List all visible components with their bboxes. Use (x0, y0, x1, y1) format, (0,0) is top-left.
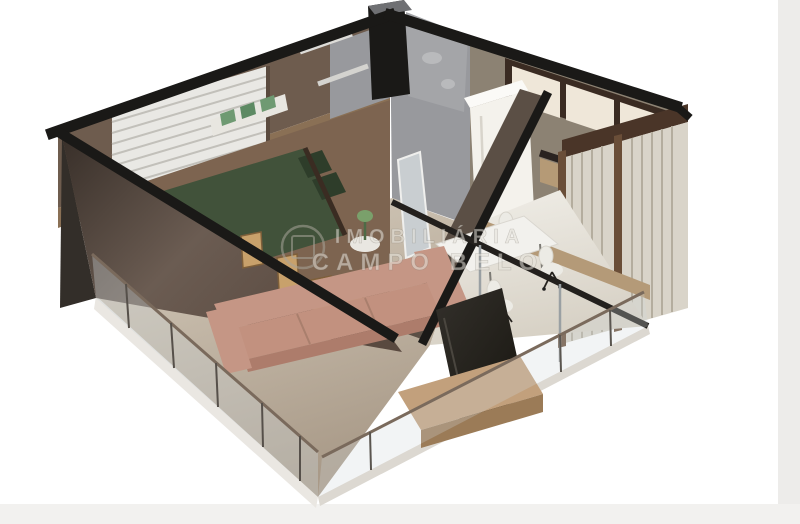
bedside-lamp (357, 210, 373, 222)
wall-mottle (422, 52, 442, 64)
watermark-line1: IMOBILIÁRIA (335, 225, 525, 248)
balustrade-post (560, 335, 561, 372)
balustrade-post (610, 310, 611, 346)
balustrade-post (262, 403, 263, 447)
wall-mottle (441, 79, 455, 89)
chair-caster (542, 287, 546, 291)
bottom-edge-band (0, 504, 800, 524)
floorplan-screenshot: IMOBILIÁRIA CAMPO BELO (0, 0, 800, 524)
watermark-line2: CAMPO BELO (312, 249, 545, 276)
right-edge-band (778, 0, 800, 524)
balustrade-post (370, 432, 371, 470)
floorplan-render: IMOBILIÁRIA CAMPO BELO (0, 0, 800, 524)
